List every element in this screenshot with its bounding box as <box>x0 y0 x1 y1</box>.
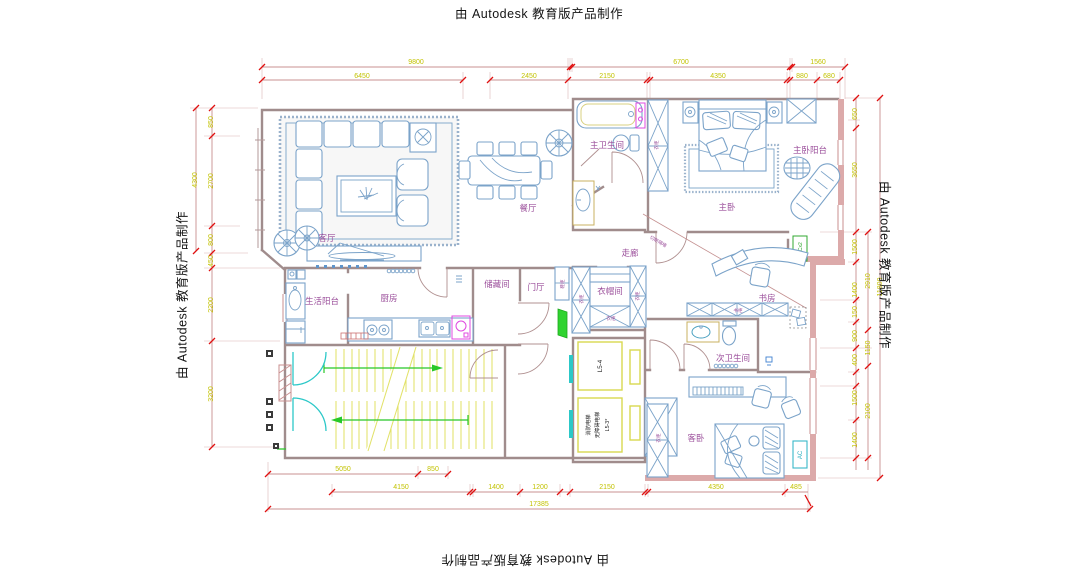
dim-6450: 6450 <box>354 73 370 80</box>
floorplan-canvas: 由 Autodesk 教育版产品制作 由 Autodesk 教育版产品制作 由 … <box>0 0 1074 576</box>
bookcase-label: 书柜 <box>733 307 743 314</box>
elevator-2-label-1: 消防电梯 <box>584 414 592 436</box>
bead-curtain-kitchen <box>387 269 415 273</box>
armchair-2 <box>397 195 428 226</box>
dim-485: 485 <box>790 484 802 491</box>
dim-1500-r2: 1500 <box>852 390 859 406</box>
armchair-1 <box>397 159 428 190</box>
second-bathroom-fixtures <box>650 321 772 370</box>
dim-450: 450 <box>208 255 215 267</box>
toilet-2 <box>723 327 736 345</box>
partition-note-label: 切断隔墙 <box>649 234 669 249</box>
watermark-right: 由 Autodesk 教育版产品制作 <box>877 181 896 349</box>
label-kitchen: 厨房 <box>380 293 397 303</box>
dim-4350-top: 4350 <box>710 73 726 80</box>
dim-6700: 6700 <box>673 59 689 66</box>
dim-1400-bot: 1400 <box>488 484 504 491</box>
label-corridor: 走廊 <box>621 248 639 258</box>
wardrobe-label-4: 衣柜 <box>653 140 660 150</box>
label-service-balcony: 生活阳台 <box>305 296 339 306</box>
wardrobe-label-5: 衣柜 <box>655 433 662 443</box>
elevator-2-label-2: 无障碍电梯 <box>593 411 601 438</box>
ac-unit-label: AC <box>798 450 804 459</box>
watermark-bottom: 由 Autodesk 教育版产品制作 <box>441 552 609 571</box>
dim-2700: 2700 <box>208 173 215 189</box>
column-markers <box>266 350 279 449</box>
bead-curtain-bath <box>714 364 738 368</box>
dim-2450: 2450 <box>521 73 537 80</box>
label-study: 书房 <box>758 293 775 303</box>
dim-3200: 3200 <box>208 386 215 402</box>
study-furniture: 书柜 <box>687 248 808 328</box>
guest-chair-2 <box>781 399 802 420</box>
dim-900: 900 <box>852 330 859 342</box>
dim-4150: 4150 <box>393 484 409 491</box>
dim-2100: 2100 <box>865 403 872 419</box>
dim-9800: 9800 <box>408 59 424 66</box>
dining-table <box>468 156 540 185</box>
label-second-bath: 次卫生间 <box>716 353 750 363</box>
shoe-cabinet-label: 鞋柜 <box>559 279 566 289</box>
floorplan-drawing: 9800 6700 1560 6450 2450 2150 4350 880 6… <box>0 0 1074 576</box>
label-foyer: 门厅 <box>527 282 545 292</box>
dim-680: 680 <box>823 73 835 80</box>
entry-door-leaf <box>558 309 567 338</box>
kitchen-sink <box>419 320 450 337</box>
dim-5050: 5050 <box>335 466 351 473</box>
desk-chair <box>750 267 771 288</box>
dim-1400-r1: 1400 <box>852 282 859 298</box>
dim-3650: 3650 <box>852 162 859 178</box>
wardrobe-label-2: 衣柜 <box>634 291 641 301</box>
master-bed <box>699 100 766 171</box>
elevator-1-label: L5-4 <box>597 359 604 372</box>
wardrobe-label-3: 衣柜 <box>606 315 616 322</box>
dim-4350-bot: 4350 <box>708 484 724 491</box>
kitchen-fixtures <box>341 268 473 341</box>
dim-1500-r1: 1500 <box>852 239 859 255</box>
label-master-balcony: 主卧阳台 <box>793 145 827 155</box>
balcony-cabinet <box>286 321 305 343</box>
dim-4300: 4300 <box>192 172 199 188</box>
watermark-left: 由 Autodesk 教育版产品制作 <box>172 211 191 379</box>
dim-2150-top: 2150 <box>599 73 615 80</box>
dim-2910: 2910 <box>865 273 872 289</box>
living-room-furniture <box>274 117 458 268</box>
staircase <box>266 347 498 451</box>
dim-400: 400 <box>852 354 859 366</box>
dim-150: 150 <box>852 306 859 318</box>
toilet-2-tank <box>723 321 736 326</box>
dim-1400-r2: 1400 <box>852 432 859 448</box>
elevator-door-2 <box>569 410 573 438</box>
label-master-bath: 主卫生间 <box>590 140 624 150</box>
dim-1150: 1150 <box>865 340 872 355</box>
label-guest-bed: 客卧 <box>687 433 705 443</box>
master-balcony-furniture: A.Cx2 <box>784 157 844 261</box>
floor-drain <box>766 357 772 362</box>
guest-chair-1 <box>751 388 772 409</box>
dim-880: 880 <box>796 73 808 80</box>
dim-800: 800 <box>208 234 215 246</box>
label-dining: 餐厅 <box>519 203 537 213</box>
label-living: 客厅 <box>318 233 336 243</box>
dim-850-bot: 850 <box>427 466 439 473</box>
dim-left-850: 850 <box>208 116 215 128</box>
dim-1200: 1200 <box>532 484 548 491</box>
label-master-bed: 主卧 <box>718 202 736 212</box>
dim-1560: 1560 <box>810 59 826 66</box>
wardrobe-label-1: 衣柜 <box>578 294 585 304</box>
elevator-door-1 <box>569 355 573 383</box>
elevator-2-label-3: L5-3* <box>605 419 611 432</box>
dining-room-furniture <box>459 130 572 199</box>
dim-2200: 2200 <box>208 297 215 313</box>
dim-2150-bot: 2150 <box>599 484 615 491</box>
dim-650: 650 <box>852 108 859 120</box>
watermark-top: 由 Autodesk 教育版产品制作 <box>455 3 623 22</box>
tv-cabinet <box>307 246 421 261</box>
label-storage: 储藏间 <box>484 279 510 289</box>
master-bedroom-furniture <box>648 99 816 263</box>
dim-17385: 17385 <box>529 501 549 508</box>
service-balcony-fixtures <box>286 270 305 343</box>
label-cloakroom: 衣帽间 <box>597 286 623 296</box>
cloak-shelf <box>590 267 630 282</box>
master-bathroom-fixtures <box>573 101 645 225</box>
